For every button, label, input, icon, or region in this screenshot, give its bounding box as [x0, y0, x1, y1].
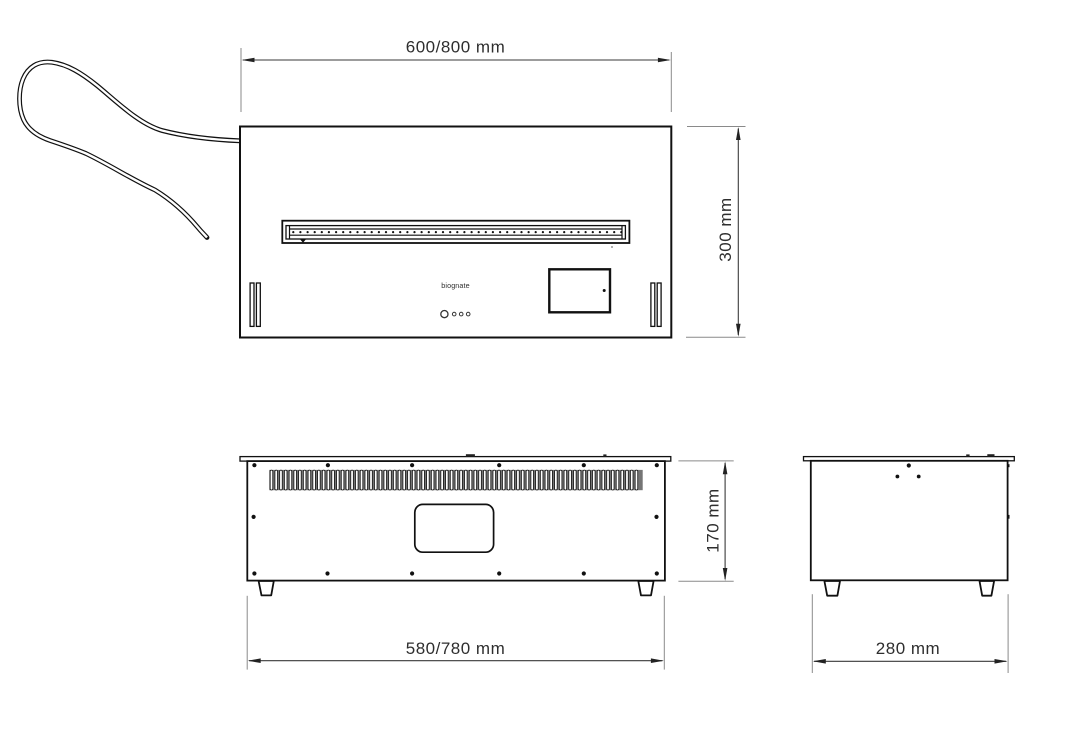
svg-text:170 mm: 170 mm	[703, 488, 722, 552]
svg-text:580/780 mm: 580/780 mm	[406, 639, 506, 658]
svg-text:280 mm: 280 mm	[876, 639, 940, 658]
svg-text:biognate: biognate	[441, 281, 469, 290]
svg-text:300 mm: 300 mm	[716, 197, 735, 261]
svg-text:600/800 mm: 600/800 mm	[406, 38, 506, 57]
